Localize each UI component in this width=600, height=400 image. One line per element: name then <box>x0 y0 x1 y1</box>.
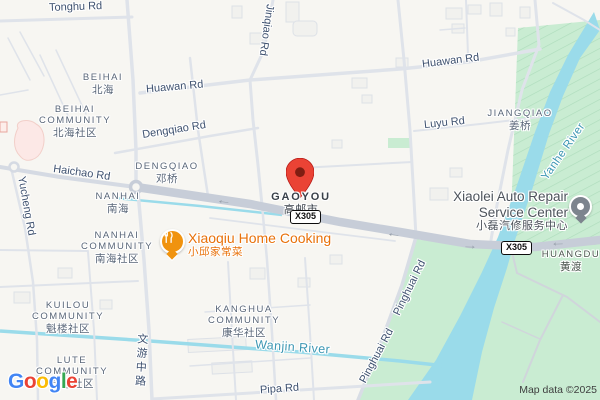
poi-label-restaurant[interactable]: Xiaoqiu Home Cooking 小邱家常菜 <box>188 230 331 258</box>
route-badge-x305-east: X305 <box>501 241 532 255</box>
area-label-jiangqiao: JIANGQIAO姜桥 <box>487 109 552 132</box>
road-label-wenyou: 文游中路 <box>133 333 149 390</box>
one-way-arrow-icon: ← <box>215 192 232 208</box>
area-label-beihai: BEIHAI北海 <box>83 73 123 96</box>
one-way-arrow-icon: ← <box>550 235 566 250</box>
map-canvas[interactable]: Tonghu Rd Jinqiao Rd Huawan Rd Huawan Rd… <box>0 0 600 400</box>
area-label-kanghua-community: KANGHUA COMMUNITY康华社区 <box>202 305 286 339</box>
area-label-nanhai: NANHAI南海 <box>96 192 141 215</box>
map-data-attribution: Map data ©2025 <box>519 384 597 396</box>
area-label-dengqiao: DENGQIAO邓桥 <box>135 162 198 185</box>
poi-label-auto-repair[interactable]: Xiaolei Auto Repair Service Center 小磊汽修服… <box>430 189 568 233</box>
road-label-tonghu: Tonghu Rd <box>49 0 103 14</box>
one-way-arrow-icon: → <box>462 238 478 253</box>
area-label-nanhai-community: NANHAI COMMUNITY南海社区 <box>75 231 159 265</box>
auto-repair-pin[interactable] <box>569 195 592 218</box>
area-label-beihai-community: BEIHAI COMMUNITY北海社区 <box>33 105 117 139</box>
restaurant-pin[interactable] <box>160 229 185 254</box>
google-logo[interactable]: Google <box>8 370 77 394</box>
roundabout-small <box>10 163 19 172</box>
area-label-huangdu: HUANGDU黄渡 <box>542 250 600 273</box>
route-badge-x305-west: X305 <box>290 210 321 224</box>
one-way-arrow-icon: ← <box>385 225 402 241</box>
area-label-kuilou-community: KUILOU COMMUNITY魁楼社区 <box>26 301 110 335</box>
